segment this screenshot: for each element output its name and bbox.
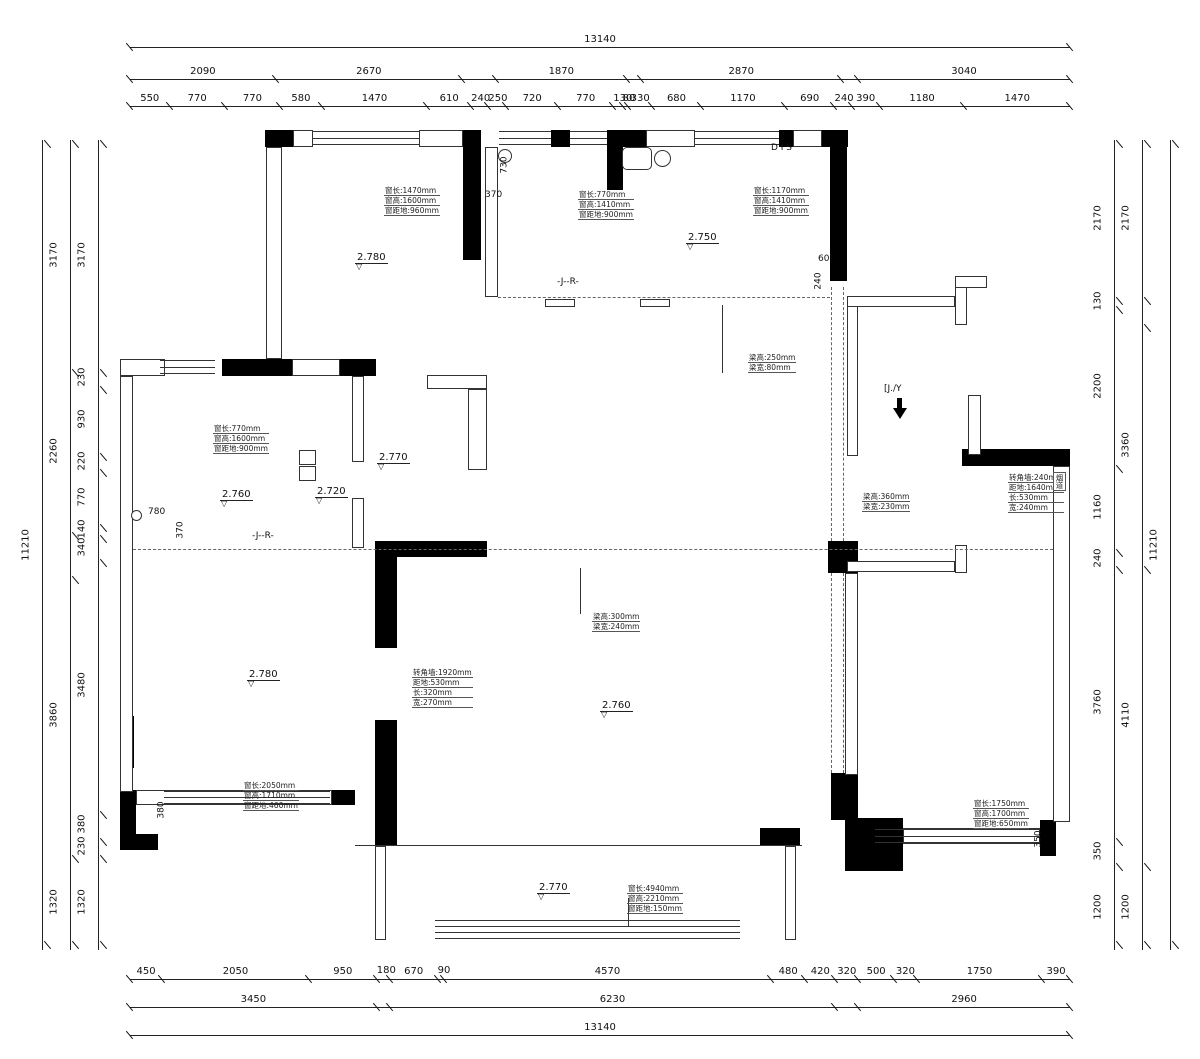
annotation-line: 窗距地:900mm bbox=[753, 206, 809, 216]
dim-segment: 2050 bbox=[162, 961, 309, 980]
dim-tick bbox=[1144, 323, 1151, 331]
dim-segment: 3170 bbox=[80, 140, 99, 369]
dim-label: 1470 bbox=[964, 93, 1070, 104]
dim-chain-top-detail: 5507707705801470610240250720770130803306… bbox=[130, 89, 1070, 107]
dim-tick bbox=[1116, 465, 1123, 473]
dim-segment: 420 bbox=[805, 961, 835, 980]
dim-label: 1470 bbox=[322, 93, 428, 104]
dim-tick bbox=[1116, 838, 1123, 846]
level-marker: 2.750 bbox=[686, 232, 719, 244]
dim-segment: 230 bbox=[80, 838, 99, 855]
dim-segment: 140 bbox=[80, 524, 99, 534]
dim-segment: 2200 bbox=[1096, 306, 1115, 465]
dim-chain-right-overall: 11210 bbox=[1152, 140, 1170, 950]
annotation-block: 梁高:300mm梁宽:240mm bbox=[592, 612, 640, 632]
dim-segment: 720 bbox=[506, 88, 558, 107]
dim-tick bbox=[100, 140, 107, 148]
wall-outline bbox=[266, 147, 282, 359]
dim-tick bbox=[72, 140, 79, 148]
dim-tick bbox=[44, 941, 51, 949]
annotation-block: 窗长:4940mm窗高:2210mm窗距地:150mm bbox=[627, 884, 683, 914]
dim-label: 580 bbox=[280, 93, 322, 104]
dim-tick bbox=[100, 469, 107, 477]
dim-tick bbox=[1116, 941, 1123, 949]
annotation-line: 窗高:1600mm bbox=[384, 196, 440, 206]
dim-chain-right-detail: 21701302200116024037603501200 bbox=[1096, 140, 1114, 950]
dim-label: 3860 bbox=[49, 702, 60, 727]
wall-outline bbox=[847, 296, 858, 456]
dim-label: 4570 bbox=[444, 966, 771, 977]
dim-segment: 1200 bbox=[1096, 863, 1115, 950]
dim-label: 340 bbox=[77, 537, 88, 556]
dim-tick bbox=[100, 941, 107, 949]
dim-label: 6230 bbox=[390, 994, 836, 1005]
dim-tick bbox=[100, 369, 107, 377]
wall-outline bbox=[427, 375, 487, 389]
dim-segment: 500 bbox=[858, 961, 894, 980]
wall-segment bbox=[463, 130, 481, 260]
dim-label: 2170 bbox=[1093, 206, 1104, 231]
dim-segment: 220 bbox=[80, 453, 99, 469]
wall-outline bbox=[352, 376, 364, 462]
dim-label: 2670 bbox=[276, 66, 462, 77]
dim-tick bbox=[1144, 941, 1151, 949]
dim-label: 13140 bbox=[130, 1022, 1070, 1033]
wall-segment bbox=[330, 790, 355, 805]
plan-label: -J--R- bbox=[252, 531, 274, 541]
wall-outline bbox=[847, 561, 955, 572]
dim-segment: 2870 bbox=[641, 61, 841, 80]
dim-tick bbox=[72, 941, 79, 949]
leader-line bbox=[580, 568, 581, 614]
dim-tick bbox=[100, 386, 107, 394]
dim-tick bbox=[100, 810, 107, 818]
dim-tick bbox=[1116, 306, 1123, 314]
annotation-line: 窗高:1410mm bbox=[578, 200, 634, 210]
window-symbol bbox=[695, 131, 779, 145]
dim-segment: 3040 bbox=[858, 61, 1070, 80]
annotation-block: 窗长:1470mm窗高:1600mm窗距地:960mm bbox=[384, 186, 440, 216]
dim-segment: 770 bbox=[558, 88, 613, 107]
plan-label: 350 bbox=[1034, 830, 1044, 847]
annotation-line: 距地:530mm bbox=[412, 678, 473, 688]
annotation-line: 窗长:1750mm bbox=[973, 799, 1029, 809]
dim-segment: 3760 bbox=[1096, 566, 1115, 838]
beam-dashed-line bbox=[831, 287, 832, 541]
wall-outline bbox=[468, 389, 487, 470]
dim-segment: 4570 bbox=[444, 961, 771, 980]
level-marker: 2.760 bbox=[600, 700, 633, 712]
dim-label: 11210 bbox=[1149, 529, 1160, 561]
dim-label: 2260 bbox=[49, 438, 60, 463]
annotation-block: 窗长:1750mm窗高:1700mm窗距地:650mm bbox=[973, 799, 1029, 829]
dim-label: 770 bbox=[77, 487, 88, 506]
dim-label: 3480 bbox=[77, 672, 88, 697]
dim-tick bbox=[100, 838, 107, 846]
dim-label: 13140 bbox=[130, 34, 1070, 45]
dim-segment: 3360 bbox=[1124, 324, 1143, 567]
dim-segment: 930 bbox=[80, 386, 99, 453]
dim-segment: 3450 bbox=[130, 989, 377, 1008]
dim-segment: 1200 bbox=[1124, 863, 1143, 950]
dim-segment: 380 bbox=[80, 811, 99, 838]
dim-tick bbox=[1116, 297, 1123, 305]
door-leaf bbox=[299, 450, 316, 465]
dim-tick bbox=[1116, 863, 1123, 871]
dim-segment: 690 bbox=[785, 88, 835, 107]
annotation-line: 窗高:1700mm bbox=[973, 809, 1029, 819]
dim-label: 670 bbox=[390, 966, 438, 977]
annotation-line: 窗长:1170mm bbox=[753, 186, 809, 196]
beam-dashed-line bbox=[831, 573, 832, 773]
wall-outline bbox=[968, 395, 981, 455]
beam-dashed-line bbox=[498, 297, 830, 298]
dim-label: 2090 bbox=[130, 66, 276, 77]
dim-tick bbox=[44, 140, 51, 148]
level-marker: 2.770 bbox=[537, 882, 570, 894]
dim-segment: 770 bbox=[80, 469, 99, 525]
dim-segment: 3170 bbox=[52, 140, 71, 369]
sink-icon bbox=[654, 150, 671, 167]
dim-label: 180 bbox=[377, 965, 390, 976]
dim-label: 3450 bbox=[130, 994, 377, 1005]
dim-segment bbox=[52, 532, 71, 575]
wall-outline bbox=[419, 130, 463, 147]
dim-segment: 230 bbox=[80, 369, 99, 386]
dim-label: 1750 bbox=[917, 966, 1042, 977]
dim-label: 3040 bbox=[858, 66, 1070, 77]
dim-tick bbox=[1144, 297, 1151, 305]
dim-segment: 350 bbox=[1096, 838, 1115, 863]
wall-segment bbox=[616, 130, 646, 147]
dim-label: 1320 bbox=[77, 890, 88, 915]
annotation-line: 梁宽:240mm bbox=[592, 622, 640, 632]
wall-outline bbox=[375, 846, 386, 940]
wall-segment bbox=[120, 834, 158, 850]
dim-label: 4110 bbox=[1121, 702, 1132, 727]
dim-label: 350 bbox=[1093, 841, 1104, 860]
wall-segment bbox=[551, 130, 570, 147]
dim-segment bbox=[1124, 297, 1143, 324]
annotation-block: 转角墙:1920mm距地:530mm长:320mm宽:270mm bbox=[412, 668, 473, 708]
level-marker: 2.770 bbox=[377, 452, 410, 464]
window-symbol bbox=[499, 131, 551, 145]
wall-segment bbox=[222, 359, 292, 376]
dim-label: 3170 bbox=[49, 242, 60, 267]
dim-tick bbox=[100, 453, 107, 461]
floor-plan-canvas: 13140 20902670187028703040 5507707705801… bbox=[0, 0, 1200, 1059]
dim-label: 930 bbox=[77, 410, 88, 429]
annotation-block: 梁高:250mm梁宽:80mm bbox=[748, 353, 796, 373]
entry-arrow-icon bbox=[893, 408, 907, 419]
dim-segment: 2260 bbox=[52, 369, 71, 532]
wall-segment bbox=[340, 359, 376, 376]
dim-segment: 240 bbox=[1096, 549, 1115, 566]
plan-label: 730 bbox=[500, 156, 510, 173]
dim-segment: 6230 bbox=[390, 989, 836, 1008]
leader-line bbox=[722, 305, 723, 373]
dim-segment: 1180 bbox=[880, 88, 965, 107]
dim-label: 680 bbox=[652, 93, 701, 104]
dim-label: 1320 bbox=[49, 890, 60, 915]
dim-segment: 2170 bbox=[1124, 140, 1143, 297]
beam-dashed-line bbox=[843, 287, 844, 541]
dim-segment: 670 bbox=[390, 961, 438, 980]
annotation-line: 梁高:250mm bbox=[748, 353, 796, 363]
dim-chain-left-major: 3170226038601320 bbox=[52, 140, 70, 950]
wall-outline bbox=[293, 130, 313, 147]
annotation-line: 梁高:360mm bbox=[862, 492, 910, 502]
dim-segment: 450 bbox=[130, 961, 162, 980]
dim-segment: 610 bbox=[427, 88, 471, 107]
plan-label: -J--R- bbox=[557, 277, 579, 287]
dim-segment: 1320 bbox=[52, 855, 71, 950]
dim-segment: 770 bbox=[225, 88, 280, 107]
annotation-line: 窗长:770mm bbox=[213, 424, 269, 434]
dim-segment: 1160 bbox=[1096, 465, 1115, 549]
dim-label: 2170 bbox=[1121, 206, 1132, 231]
annotation-line: 窗距地:650mm bbox=[973, 819, 1029, 829]
dim-chain-bottom-overall: 13140 bbox=[130, 1018, 1070, 1036]
wall-segment bbox=[831, 773, 858, 820]
dim-segment: 550 bbox=[130, 88, 170, 107]
dim-tick bbox=[100, 524, 107, 532]
annotation-line: 窗距地:900mm bbox=[213, 444, 269, 454]
annotation-line: 宽:240mm bbox=[1008, 503, 1064, 513]
dim-segment: 770 bbox=[170, 88, 225, 107]
wall-outline bbox=[845, 573, 858, 775]
dim-label: 2050 bbox=[162, 966, 309, 977]
dim-chain-top-major: 20902670187028703040 bbox=[130, 62, 1070, 80]
annotation-line: 窗距地:900mm bbox=[578, 210, 634, 220]
dim-label: 2200 bbox=[1093, 373, 1104, 398]
window-symbol bbox=[435, 920, 740, 939]
plan-vertical-label: 烟道 bbox=[1053, 472, 1066, 491]
dim-tick bbox=[1116, 549, 1123, 557]
dim-segment: 3860 bbox=[52, 576, 71, 855]
annotation-line: 长:320mm bbox=[412, 688, 473, 698]
wall-outline bbox=[847, 296, 955, 307]
dim-segment: 2960 bbox=[858, 989, 1070, 1008]
dim-label: 770 bbox=[225, 93, 280, 104]
annotation-line: 梁宽:230mm bbox=[862, 502, 910, 512]
annotation-block: 窗长:2050mm窗高:1710mm窗距地:460mm bbox=[243, 781, 299, 811]
dim-tick bbox=[1172, 140, 1179, 148]
dim-segment: 1470 bbox=[322, 88, 428, 107]
plan-label: 380 bbox=[157, 801, 167, 818]
dim-segment: 390 bbox=[1042, 961, 1070, 980]
dim-tick bbox=[100, 534, 107, 542]
plan-label: D I S bbox=[771, 143, 792, 153]
plan-label: 370 bbox=[485, 190, 502, 200]
wall-segment bbox=[377, 828, 397, 845]
dim-segment bbox=[462, 61, 496, 80]
dim-tick bbox=[72, 854, 79, 862]
dim-segment: 1750 bbox=[917, 961, 1042, 980]
wall-line bbox=[355, 845, 802, 846]
dim-segment: 2670 bbox=[276, 61, 462, 80]
annotation-line: 窗高:1600mm bbox=[213, 434, 269, 444]
dim-label: 240 bbox=[1093, 548, 1104, 567]
plan-label: 60 bbox=[818, 254, 829, 264]
door-leaf bbox=[640, 299, 670, 307]
door-leaf bbox=[299, 466, 316, 481]
dim-segment: 2090 bbox=[130, 61, 276, 80]
wall-outline bbox=[646, 130, 695, 147]
annotation-line: 窗高:1710mm bbox=[243, 791, 299, 801]
dim-segment: 2170 bbox=[1096, 140, 1115, 297]
dim-label: 1200 bbox=[1093, 894, 1104, 919]
dim-tick bbox=[1144, 566, 1151, 574]
dim-segment: 680 bbox=[652, 88, 701, 107]
dim-label: 380 bbox=[77, 815, 88, 834]
dim-label: 2960 bbox=[858, 994, 1070, 1005]
annotation-line: 窗长:2050mm bbox=[243, 781, 299, 791]
dim-segment: 580 bbox=[280, 88, 322, 107]
dim-label: 500 bbox=[858, 966, 894, 977]
dim-label: 3760 bbox=[1093, 689, 1104, 714]
door-leaf bbox=[545, 299, 575, 307]
dim-segment: 4110 bbox=[1124, 566, 1143, 863]
entry-arrow-icon bbox=[897, 398, 902, 408]
dim-segment: 130 bbox=[1096, 297, 1115, 306]
annotation-line: 宽:270mm bbox=[412, 698, 473, 708]
window-symbol bbox=[160, 360, 215, 374]
dim-segment: 480 bbox=[771, 961, 805, 980]
window-symbol bbox=[570, 131, 607, 145]
dim-segment: 13140 bbox=[130, 1017, 1070, 1036]
annotation-line: 窗距地:460mm bbox=[243, 801, 299, 811]
dim-label: 3360 bbox=[1121, 432, 1132, 457]
dim-label: 770 bbox=[170, 93, 225, 104]
dim-segment: 1470 bbox=[964, 88, 1070, 107]
annotation-block: 窗长:1170mm窗高:1410mm窗距地:900mm bbox=[753, 186, 809, 216]
dim-label: 11210 bbox=[21, 529, 32, 561]
wall-segment bbox=[822, 130, 848, 147]
dim-chain-top-overall: 13140 bbox=[130, 30, 1070, 48]
dim-chain-left-detail: 317023093022077014034034803802301320 bbox=[80, 140, 98, 950]
dim-chain-left-overall: 11210 bbox=[24, 140, 42, 950]
window-symbol bbox=[875, 829, 1040, 843]
wall-outline bbox=[292, 359, 340, 376]
beam-dashed-line bbox=[133, 549, 1053, 550]
wall-outline bbox=[120, 359, 165, 376]
plan-label: 370 bbox=[176, 521, 186, 538]
annotation-line: 长:530mm bbox=[1008, 493, 1064, 503]
annotation-line: 窗长:1470mm bbox=[384, 186, 440, 196]
annotation-line: 窗距地:150mm bbox=[627, 904, 683, 914]
dim-segment: 950 bbox=[309, 961, 377, 980]
dim-label: 720 bbox=[506, 93, 558, 104]
annotation-block: 窗长:770mm窗高:1410mm窗距地:900mm bbox=[578, 190, 634, 220]
dim-tick bbox=[1116, 140, 1123, 148]
dim-segment: 340 bbox=[80, 535, 99, 560]
dim-tick bbox=[1172, 941, 1179, 949]
wall-segment bbox=[830, 147, 847, 281]
wall-outline bbox=[1053, 466, 1070, 822]
dim-tick bbox=[1116, 566, 1123, 574]
dim-segment: 11210 bbox=[1152, 140, 1171, 950]
level-marker: 2.760 bbox=[220, 489, 253, 501]
dim-label: 1200 bbox=[1121, 894, 1132, 919]
dim-label: 610 bbox=[427, 93, 471, 104]
plan-label: 780 bbox=[148, 507, 165, 517]
level-marker: 2.720 bbox=[315, 486, 348, 498]
annotation-line: 窗长:4940mm bbox=[627, 884, 683, 894]
annotation-block: 窗长:770mm窗高:1600mm窗距地:900mm bbox=[213, 424, 269, 454]
annotation-line: 转角墙:1920mm bbox=[412, 668, 473, 678]
window-symbol bbox=[313, 131, 419, 145]
toilet-icon bbox=[622, 147, 652, 170]
dim-segment: 11210 bbox=[24, 140, 43, 950]
annotation-line: 梁高:300mm bbox=[592, 612, 640, 622]
dim-label: 220 bbox=[77, 451, 88, 470]
dim-label: 1170 bbox=[701, 93, 785, 104]
dim-label: 550 bbox=[130, 93, 170, 104]
dim-label: 1180 bbox=[880, 93, 965, 104]
wall-segment bbox=[845, 818, 903, 871]
annotation-line: 窗高:2210mm bbox=[627, 894, 683, 904]
dim-tick bbox=[100, 854, 107, 862]
door-knob-icon bbox=[131, 510, 142, 521]
wall-segment bbox=[375, 557, 397, 648]
dim-tick bbox=[72, 576, 79, 584]
wall-outline bbox=[793, 130, 822, 147]
annotation-line: 窗距地:960mm bbox=[384, 206, 440, 216]
wall-segment bbox=[760, 828, 800, 845]
dim-label: 2870 bbox=[641, 66, 841, 77]
wall-outline bbox=[352, 498, 364, 548]
annotation-line: 梁宽:80mm bbox=[748, 363, 796, 373]
beam-dashed-line bbox=[843, 573, 844, 773]
dim-label: 950 bbox=[309, 966, 377, 977]
dim-label: 3170 bbox=[77, 242, 88, 267]
level-marker: 2.780 bbox=[247, 669, 280, 681]
dim-tick bbox=[100, 559, 107, 567]
dim-segment: 13140 bbox=[130, 29, 1070, 48]
annotation-block: 梁高:360mm梁宽:230mm bbox=[862, 492, 910, 512]
plan-label: [J./Y bbox=[884, 384, 902, 394]
annotation-line: 窗高:1410mm bbox=[753, 196, 809, 206]
level-marker: 2.780 bbox=[355, 252, 388, 264]
wall-outline bbox=[785, 846, 796, 940]
wall-outline bbox=[485, 147, 498, 297]
dim-segment: 1320 bbox=[80, 855, 99, 950]
annotation-line: 窗长:770mm bbox=[578, 190, 634, 200]
dim-tick bbox=[1144, 140, 1151, 148]
wall-segment bbox=[265, 130, 293, 147]
dim-label: 230 bbox=[77, 837, 88, 856]
dim-label: 230 bbox=[77, 368, 88, 387]
plan-label: 240 bbox=[814, 272, 824, 289]
dim-tick bbox=[1144, 863, 1151, 871]
dim-label: 1870 bbox=[496, 66, 626, 77]
wall-outline bbox=[120, 376, 133, 792]
dim-segment: 390 bbox=[852, 88, 880, 107]
wall-outline bbox=[955, 276, 987, 288]
dim-label: 770 bbox=[558, 93, 613, 104]
dim-chain-right-major: 2170336041101200 bbox=[1124, 140, 1142, 950]
dim-segment: 3480 bbox=[80, 559, 99, 810]
dim-segment: 1170 bbox=[701, 88, 785, 107]
dim-chain-bottom-detail: 4502050950180670904570480420320500320175… bbox=[130, 962, 1070, 980]
dim-label: 1160 bbox=[1093, 494, 1104, 519]
dim-segment: 1870 bbox=[496, 61, 626, 80]
dim-chain-bottom-major: 345062302960 bbox=[130, 990, 1070, 1008]
dim-label: 690 bbox=[785, 93, 835, 104]
